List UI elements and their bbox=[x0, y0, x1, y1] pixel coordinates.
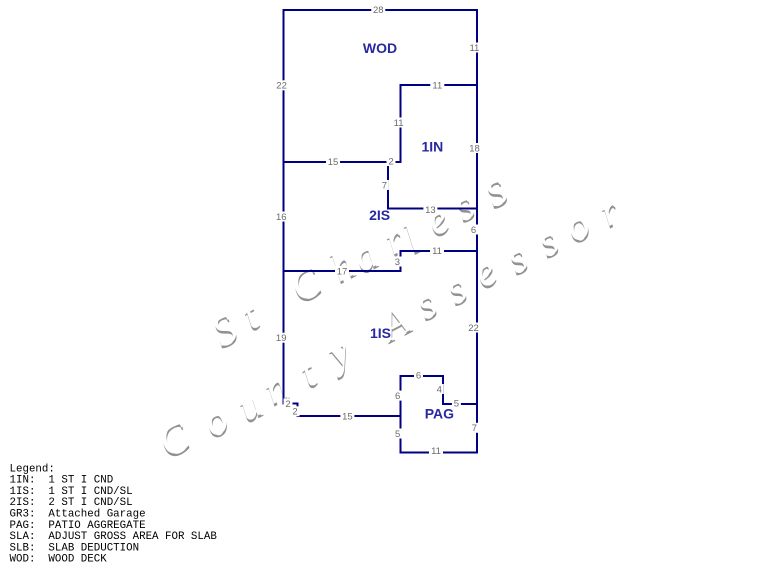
svg-text:4: 4 bbox=[437, 384, 442, 395]
svg-text:7: 7 bbox=[382, 180, 387, 191]
svg-text:6: 6 bbox=[471, 225, 476, 236]
svg-text:5: 5 bbox=[454, 398, 459, 409]
svg-text:WOD: WOOD DECK: WOD: WOOD DECK bbox=[10, 554, 108, 566]
svg-text:11: 11 bbox=[394, 118, 404, 129]
svg-text:1IS: 1IS bbox=[370, 325, 391, 341]
svg-text:22: 22 bbox=[468, 323, 479, 334]
svg-text:PAG: PAG bbox=[425, 406, 454, 422]
svg-text:GR3: Attached Garage: GR3: Attached Garage bbox=[10, 509, 146, 521]
svg-text:11: 11 bbox=[432, 246, 442, 257]
svg-text:7: 7 bbox=[472, 423, 477, 434]
svg-text:SLA: ADJUST GROSS AREA FOR SL: SLA: ADJUST GROSS AREA FOR SLAB bbox=[10, 531, 218, 543]
svg-text:22: 22 bbox=[276, 81, 287, 92]
svg-text:15: 15 bbox=[342, 411, 353, 422]
svg-text:11: 11 bbox=[469, 43, 479, 54]
svg-text:13: 13 bbox=[425, 205, 436, 216]
svg-text:PAG: PATIO AGGREGATE: PAG: PATIO AGGREGATE bbox=[10, 520, 146, 532]
svg-text:2: 2 bbox=[388, 156, 393, 167]
svg-text:SLB: SLAB DEDUCTION: SLB: SLAB DEDUCTION bbox=[10, 542, 140, 554]
svg-text:Legend:: Legend: bbox=[10, 463, 55, 475]
svg-text:11: 11 bbox=[432, 80, 442, 91]
svg-text:17: 17 bbox=[337, 266, 348, 277]
svg-text:11: 11 bbox=[431, 446, 441, 457]
svg-text:5: 5 bbox=[395, 429, 400, 440]
svg-text:2IS: 2 ST I CND/SL: 2IS: 2 ST I CND/SL bbox=[10, 497, 133, 509]
svg-text:18: 18 bbox=[469, 143, 480, 154]
svg-text:3: 3 bbox=[395, 257, 400, 268]
svg-text:2: 2 bbox=[292, 407, 297, 418]
svg-text:WOD: WOD bbox=[363, 40, 397, 56]
svg-text:28: 28 bbox=[373, 5, 384, 16]
svg-text:6: 6 bbox=[416, 370, 421, 381]
svg-text:2: 2 bbox=[285, 399, 290, 410]
svg-text:19: 19 bbox=[276, 333, 287, 344]
svg-text:1IS: 1 ST I CND/SL: 1IS: 1 ST I CND/SL bbox=[10, 486, 133, 498]
svg-text:6: 6 bbox=[395, 391, 400, 402]
svg-text:16: 16 bbox=[276, 212, 287, 223]
svg-text:15: 15 bbox=[328, 157, 339, 168]
svg-text:1IN: 1IN bbox=[422, 138, 444, 154]
svg-text:1IN: 1 ST I CND: 1IN: 1 ST I CND bbox=[10, 475, 114, 487]
svg-text:2IS: 2IS bbox=[369, 207, 390, 223]
